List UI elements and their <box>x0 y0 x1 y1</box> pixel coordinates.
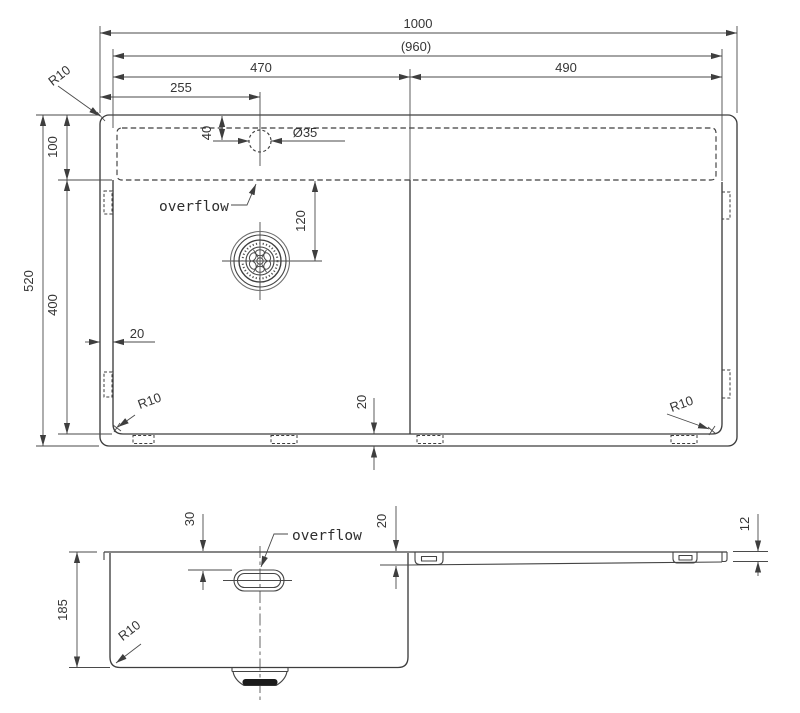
dim-deck-depth: 100 <box>45 115 67 180</box>
dim-faucet-x: 255 <box>100 80 260 97</box>
dim-drain-position: 120 <box>293 181 315 261</box>
dim-inner-width: (960) <box>113 39 722 56</box>
overflow-hole-section <box>223 570 292 591</box>
dim-faucet-x-label: 255 <box>170 80 192 95</box>
dim-faucet-y-label: 40 <box>199 126 214 140</box>
section-extension-lines <box>69 552 768 668</box>
section-right-hem <box>722 552 727 562</box>
dim-deck-depth-label: 100 <box>45 136 60 158</box>
dim-side-offset: 20 <box>85 326 155 342</box>
dim-overall-width-label: 1000 <box>404 16 433 31</box>
dim-board-depth-outer: 12 <box>737 514 758 576</box>
dim-board-depth-inner-label: 20 <box>374 514 389 528</box>
radius-section-label: R10 <box>115 617 143 644</box>
overflow-plan-label: overflow <box>159 199 229 215</box>
dim-overflow-depth-label: 30 <box>182 512 197 526</box>
overflow-callout-section: overflow <box>261 528 362 567</box>
dim-bottom-offset: 20 <box>354 395 374 470</box>
dim-faucet-diameter-label: Ø35 <box>293 125 318 140</box>
dim-faucet-diameter: Ø35 <box>228 125 345 141</box>
dim-overall-depth-label: 520 <box>21 270 36 292</box>
plan-dimensions: 1000 (960) 470 490 255 520 100 <box>21 16 737 470</box>
dim-drainboard-width: 490 <box>410 60 722 77</box>
dim-overall-depth: 520 <box>21 115 43 446</box>
dim-drain-position-label: 120 <box>293 210 308 232</box>
drain-opening-dark <box>243 679 278 686</box>
mounting-clips <box>104 191 730 444</box>
dim-overall-width: 1000 <box>100 16 737 33</box>
dim-bowl-depth-label: 185 <box>55 599 70 621</box>
radius-callout-top-left: R10 <box>45 62 100 116</box>
dim-overflow-depth: 30 <box>182 512 203 590</box>
sink-section-view <box>104 546 727 702</box>
dim-bowl-length-label: 400 <box>45 294 60 316</box>
dim-bottom-offset-label: 20 <box>354 395 369 409</box>
dim-bowl-width-label: 470 <box>250 60 272 75</box>
dim-drainboard-width-label: 490 <box>555 60 577 75</box>
section-dimensions: 185 30 20 12 R10 overflow <box>55 506 768 668</box>
extension-lines <box>36 26 737 446</box>
drain-strainer <box>222 222 322 300</box>
plan-outer-edge <box>100 115 737 446</box>
radius-callout-bottom-right: R10 <box>667 393 709 429</box>
dim-inner-width-label: (960) <box>401 39 431 54</box>
radius-top-left-label: R10 <box>45 62 73 89</box>
dim-board-depth-inner: 20 <box>374 506 396 589</box>
dim-bowl-length: 400 <box>45 180 67 434</box>
overflow-callout-plan: overflow <box>159 184 256 215</box>
radius-callout-section: R10 <box>115 617 143 663</box>
radius-bottom-left-label: R10 <box>136 390 164 412</box>
radius-bottom-right-label: R10 <box>668 393 696 415</box>
corner-ticks <box>97 112 716 435</box>
plan-bowl-outline <box>113 180 722 434</box>
sink-technical-drawing: 1000 (960) 470 490 255 520 100 <box>0 0 800 713</box>
dim-side-offset-label: 20 <box>130 326 144 341</box>
dim-board-depth-outer-label: 12 <box>737 517 752 531</box>
overflow-section-label: overflow <box>292 528 362 544</box>
dim-bowl-width: 470 <box>113 60 410 77</box>
faucet-hole <box>249 92 271 166</box>
radius-callout-bottom-left: R10 <box>118 390 163 427</box>
dim-bowl-depth: 185 <box>55 552 77 668</box>
sink-plan-view <box>97 92 737 446</box>
